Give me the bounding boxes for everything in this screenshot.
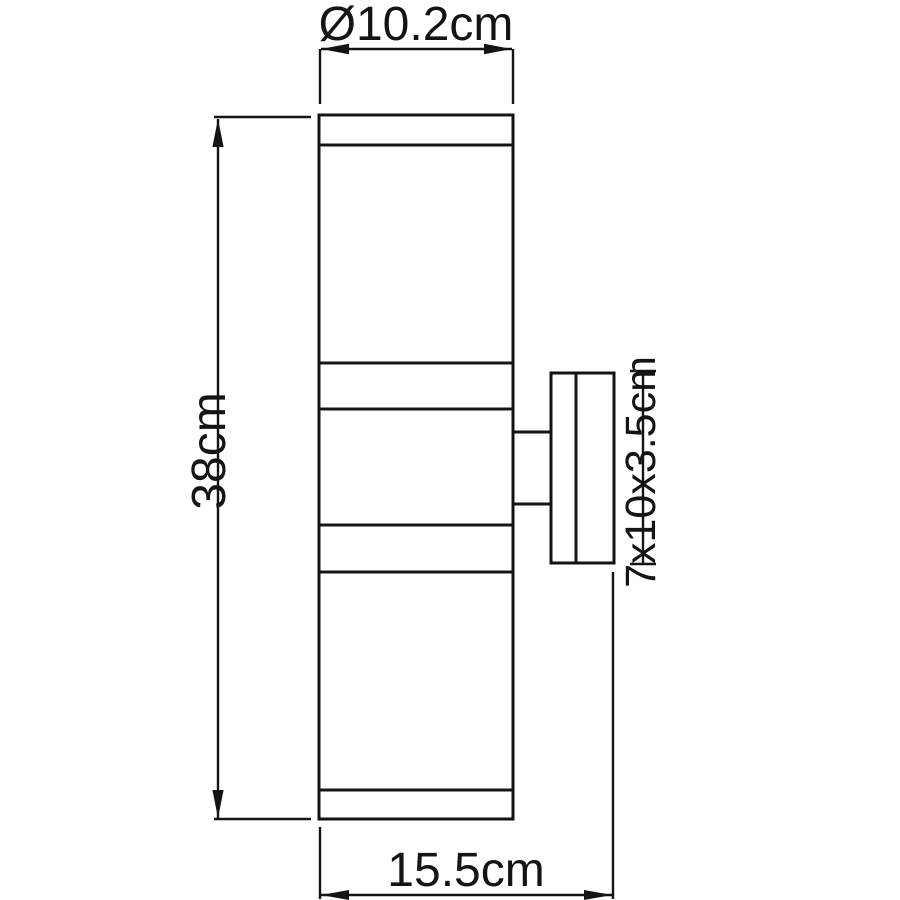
label-diameter: Ø10.2cm [319, 0, 514, 51]
label-width: 15.5cm [387, 844, 544, 897]
arrowhead-right-icon [584, 890, 612, 900]
wall-light-dimension-drawing: Ø10.2cm 38cm 7x10x3.5cm 15.5cm [0, 0, 900, 900]
wall-bracket-outline [551, 373, 614, 563]
dimension-diameter: Ø10.2cm [319, 0, 514, 104]
dimension-height: 38cm [183, 117, 311, 819]
arrowhead-up-icon [212, 119, 223, 147]
dimension-width: 15.5cm [320, 572, 613, 900]
label-height: 38cm [183, 392, 236, 509]
dimension-bracket-size: 7x10x3.5cm [617, 356, 665, 588]
dimension-drawing-canvas: Ø10.2cm 38cm 7x10x3.5cm 15.5cm [0, 0, 900, 900]
arrowhead-left-icon [321, 890, 349, 900]
label-bracket-size: 7x10x3.5cm [617, 356, 665, 588]
wall-mount [513, 373, 614, 563]
fixture-body [319, 115, 513, 819]
fixture-body-outline [319, 115, 513, 819]
arrowhead-down-icon [212, 790, 223, 818]
